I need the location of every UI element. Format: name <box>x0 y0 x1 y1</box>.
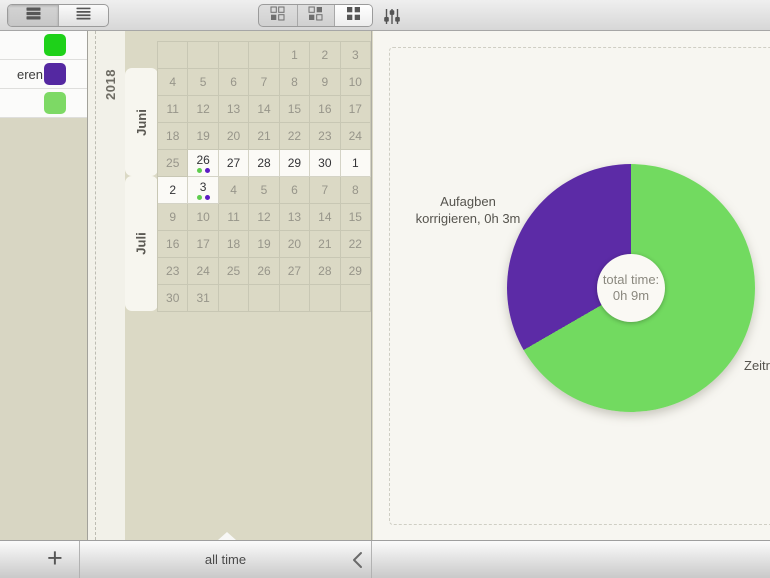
calendar-day-cell[interactable]: 20 <box>219 123 249 150</box>
day-number: 1 <box>291 48 298 62</box>
day-number: 12 <box>196 102 209 116</box>
calendar-day-cell[interactable]: 23 <box>158 258 188 285</box>
day-number: 5 <box>200 75 207 89</box>
calendar-day-cell[interactable]: 6 <box>280 177 310 204</box>
calendar-day-cell[interactable]: 18 <box>219 231 249 258</box>
segment-list-lines[interactable] <box>58 5 108 26</box>
sidebar: eren <box>0 31 88 540</box>
calendar-day-cell[interactable]: 7 <box>249 69 279 96</box>
day-number: 11 <box>166 102 178 116</box>
pie-callout-left-line2: korrigieren, 0h 3m <box>398 210 538 227</box>
calendar-day-cell[interactable]: 19 <box>249 231 279 258</box>
calendar-empty-cell <box>219 42 249 69</box>
calendar-day-cell[interactable]: 3 <box>341 42 371 69</box>
calendar-day-cell[interactable]: 6 <box>219 69 249 96</box>
day-number: 18 <box>166 129 179 143</box>
month-tab-label: Juni <box>134 109 149 136</box>
calendar-day-cell[interactable]: 23 <box>310 123 340 150</box>
pie-callout-right: Zeitr <box>744 357 770 374</box>
month-tab-juni[interactable]: Juni <box>125 68 158 176</box>
year-label: 2018 <box>97 61 123 107</box>
category-color-chip <box>44 63 66 85</box>
day-number: 27 <box>227 156 240 170</box>
calendar-day-cell[interactable]: 25 <box>158 150 188 177</box>
day-number: 13 <box>288 210 301 224</box>
grid-two-filled-icon <box>308 6 323 26</box>
calendar-day-cell[interactable]: 22 <box>341 231 371 258</box>
segment-grid-one-filled[interactable] <box>259 5 297 26</box>
calendar-day-cell[interactable]: 30 <box>310 150 340 177</box>
day-number: 4 <box>169 75 176 89</box>
day-number: 3 <box>200 180 207 194</box>
day-number: 10 <box>349 75 362 89</box>
day-number: 9 <box>322 75 329 89</box>
footer-range-section: all time <box>79 541 372 578</box>
sidebar-category-row[interactable] <box>0 89 87 118</box>
calendar-day-cell[interactable]: 21 <box>249 123 279 150</box>
calendar-day-cell[interactable]: 11 <box>158 96 188 123</box>
calendar-day-cell[interactable]: 29 <box>341 258 371 285</box>
pie-callout-left-line1: Aufagben <box>398 193 538 210</box>
calendar-day-cell[interactable]: 21 <box>310 231 340 258</box>
filter-sliders-icon[interactable] <box>382 7 402 25</box>
day-number: 10 <box>196 210 209 224</box>
sidebar-category-row[interactable] <box>0 31 87 60</box>
day-number: 2 <box>322 48 329 62</box>
segment-grid-two-filled[interactable] <box>297 5 335 26</box>
calendar-day-cell[interactable]: 5 <box>249 177 279 204</box>
day-number: 20 <box>227 129 240 143</box>
calendar-day-cell[interactable]: 2 <box>158 177 188 204</box>
calendar-day-cell[interactable]: 16 <box>158 231 188 258</box>
activity-dot <box>205 168 210 173</box>
calendar-day-cell[interactable]: 24 <box>188 258 218 285</box>
category-label: eren <box>17 67 43 82</box>
calendar-day-cell[interactable]: 12 <box>188 96 218 123</box>
calendar-panel: 2018 JuniJuli 12345678910111213141516171… <box>88 31 372 540</box>
day-number: 4 <box>230 183 237 197</box>
activity-dots <box>197 168 210 173</box>
grid-all-filled-icon <box>346 6 361 26</box>
calendar-empty-cell <box>188 42 218 69</box>
calendar-day-cell[interactable]: 14 <box>249 96 279 123</box>
activity-dot <box>205 195 210 200</box>
year-gutter: 2018 <box>88 31 125 540</box>
day-number: 5 <box>261 183 268 197</box>
day-number: 6 <box>230 75 237 89</box>
activity-dot <box>197 195 202 200</box>
calendar-empty-cell <box>219 285 249 312</box>
day-number: 21 <box>257 129 270 143</box>
day-number: 26 <box>196 153 209 167</box>
calendar-day-cell[interactable]: 7 <box>310 177 340 204</box>
day-number: 3 <box>352 48 359 62</box>
calendar-day-cell[interactable]: 22 <box>280 123 310 150</box>
calendar-day-cell[interactable]: 1 <box>280 42 310 69</box>
calendar-day-cell[interactable]: 27 <box>219 150 249 177</box>
footer-bar: + all time <box>0 540 770 578</box>
day-number: 23 <box>318 129 331 143</box>
toolbar <box>0 0 770 31</box>
calendar-day-cell[interactable]: 15 <box>280 96 310 123</box>
calendar-day-cell[interactable]: 26 <box>249 258 279 285</box>
calendar-day-cell[interactable]: 12 <box>249 204 279 231</box>
day-number: 17 <box>196 237 209 251</box>
activity-dots <box>197 195 210 200</box>
layout-segmented-control <box>258 4 373 27</box>
day-number: 7 <box>322 183 329 197</box>
calendar-day-cell[interactable]: 8 <box>341 177 371 204</box>
day-number: 21 <box>318 237 331 251</box>
year-text: 2018 <box>103 69 118 100</box>
day-number: 6 <box>291 183 298 197</box>
calendar-day-cell[interactable]: 5 <box>188 69 218 96</box>
day-number: 29 <box>349 264 362 278</box>
category-color-chip <box>44 92 66 114</box>
calendar-day-cell[interactable]: 31 <box>188 285 218 312</box>
footer-right-section <box>373 541 770 578</box>
day-number: 28 <box>257 156 270 170</box>
chevron-left-icon[interactable] <box>352 551 363 572</box>
day-number: 20 <box>288 237 301 251</box>
calendar-day-cell[interactable]: 19 <box>188 123 218 150</box>
day-number: 15 <box>288 102 301 116</box>
day-number: 30 <box>318 156 331 170</box>
category-list: eren <box>0 31 87 118</box>
day-number: 23 <box>166 264 179 278</box>
calendar-day-cell[interactable]: 24 <box>341 123 371 150</box>
calendar-day-cell[interactable]: 25 <box>219 258 249 285</box>
view-mode-segmented-control <box>7 4 109 27</box>
calendar-day-cell[interactable]: 4 <box>219 177 249 204</box>
year-gutter-dashed-line <box>95 31 96 540</box>
calendar-day-cell[interactable]: 9 <box>310 69 340 96</box>
day-number: 30 <box>166 291 179 305</box>
day-number: 14 <box>318 210 331 224</box>
calendar-empty-cell <box>280 285 310 312</box>
day-number: 1 <box>352 156 359 170</box>
calendar-empty-cell <box>249 42 279 69</box>
report-panel: total time: 0h 9m Aufagben korrigieren, … <box>373 31 770 540</box>
calendar-day-cell[interactable]: 17 <box>188 231 218 258</box>
calendar-day-cell[interactable]: 10 <box>188 204 218 231</box>
calendar-day-cell[interactable]: 26 <box>188 150 218 177</box>
day-number: 25 <box>166 156 179 170</box>
day-number: 11 <box>227 210 239 224</box>
day-number: 17 <box>349 102 362 116</box>
list-rows-icon <box>26 7 41 25</box>
calendar-day-cell[interactable]: 15 <box>341 204 371 231</box>
calendar-day-cell[interactable]: 16 <box>310 96 340 123</box>
pie-chart[interactable]: total time: 0h 9m <box>507 164 755 412</box>
grid-one-filled-icon <box>270 6 285 26</box>
pie-callout-left: Aufagben korrigieren, 0h 3m <box>398 193 538 227</box>
day-number: 18 <box>227 237 240 251</box>
day-number: 29 <box>288 156 301 170</box>
calendar-day-cell[interactable]: 10 <box>341 69 371 96</box>
day-number: 19 <box>257 237 270 251</box>
calendar-empty-cell <box>310 285 340 312</box>
calendar-day-cell[interactable]: 13 <box>219 96 249 123</box>
day-number: 16 <box>318 102 331 116</box>
calendar-day-cell[interactable]: 2 <box>310 42 340 69</box>
day-number: 31 <box>196 291 209 305</box>
calendar-day-cell[interactable]: 18 <box>158 123 188 150</box>
day-number: 24 <box>349 129 362 143</box>
day-number: 8 <box>291 75 298 89</box>
day-number: 12 <box>257 210 270 224</box>
calendar-day-cell[interactable]: 3 <box>188 177 218 204</box>
calendar-day-cell[interactable]: 11 <box>219 204 249 231</box>
day-number: 13 <box>227 102 240 116</box>
month-tab-juli[interactable]: Juli <box>125 176 158 311</box>
day-number: 9 <box>169 210 176 224</box>
calendar-empty-cell <box>249 285 279 312</box>
category-color-chip <box>44 34 66 56</box>
day-number: 7 <box>261 75 268 89</box>
footer-add-section: + <box>0 541 79 578</box>
day-number: 16 <box>166 237 179 251</box>
calendar-day-cell[interactable]: 13 <box>280 204 310 231</box>
list-lines-icon <box>76 7 91 25</box>
day-number: 8 <box>352 183 359 197</box>
total-time-value: 0h 9m <box>613 288 649 304</box>
calendar-day-cell[interactable]: 1 <box>341 150 371 177</box>
calendar-day-cell[interactable]: 17 <box>341 96 371 123</box>
calendar-empty-cell <box>158 42 188 69</box>
activity-dot <box>197 168 202 173</box>
app-window: eren 2018 JuniJuli 123456789101112131415… <box>0 0 770 578</box>
day-number: 25 <box>227 264 240 278</box>
day-number: 22 <box>288 129 301 143</box>
total-time-caption: total time: <box>603 272 659 288</box>
calendar-day-cell[interactable]: 27 <box>280 258 310 285</box>
day-number: 15 <box>349 210 362 224</box>
calendar-day-cell[interactable]: 29 <box>280 150 310 177</box>
calendar-day-cell[interactable]: 20 <box>280 231 310 258</box>
add-category-button[interactable]: + <box>47 543 63 574</box>
day-number: 28 <box>318 264 331 278</box>
day-number: 24 <box>196 264 209 278</box>
month-tab-label: Juli <box>134 232 149 254</box>
day-number: 27 <box>288 264 301 278</box>
date-range-selector[interactable]: all time <box>205 552 246 567</box>
pie-center-label: total time: 0h 9m <box>597 254 665 322</box>
day-number: 26 <box>257 264 270 278</box>
day-number: 2 <box>169 183 176 197</box>
day-number: 14 <box>257 102 270 116</box>
sidebar-category-row[interactable]: eren <box>0 60 87 89</box>
day-number: 19 <box>196 129 209 143</box>
range-popover-caret <box>218 532 236 540</box>
calendar-day-cell[interactable]: 4 <box>158 69 188 96</box>
calendar-day-cell[interactable]: 14 <box>310 204 340 231</box>
calendar-day-cell[interactable]: 8 <box>280 69 310 96</box>
segment-list-rows[interactable] <box>8 5 58 26</box>
calendar-day-cell[interactable]: 9 <box>158 204 188 231</box>
calendar-day-cell[interactable]: 30 <box>158 285 188 312</box>
day-number: 22 <box>349 237 362 251</box>
calendar-grid: 1234567891011121314151617181920212223242… <box>157 41 371 312</box>
segment-grid-all-filled[interactable] <box>334 5 372 26</box>
calendar-empty-cell <box>341 285 371 312</box>
calendar-day-cell[interactable]: 28 <box>249 150 279 177</box>
calendar-day-cell[interactable]: 28 <box>310 258 340 285</box>
